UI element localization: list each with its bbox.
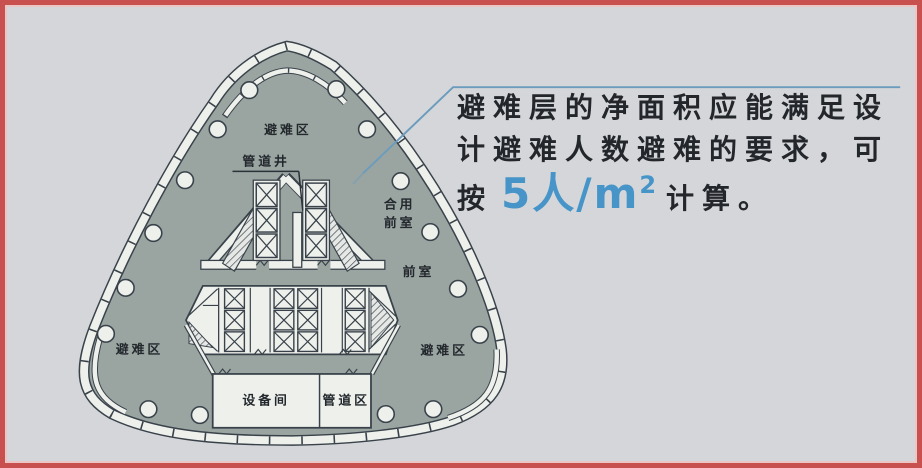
pipe-shaft-bar (293, 212, 302, 267)
label-refuge-right: 避难区 (420, 342, 467, 358)
rate-text: 5人/m (501, 169, 639, 218)
label-pipe-shaft: 管道井 (242, 154, 289, 170)
annotation-text: 避难层的净面积应能满足设 计避难人数避难的要求，可 按 5人/m2 计算。 (457, 87, 919, 220)
page-canvas: 设备间 管道区 避难区 管道井 合用 前室 前室 避难区 避难区 避难层的净面积… (5, 5, 917, 463)
label-shared-lobby-2: 前室 (384, 215, 416, 231)
occupancy-rate-value: 5人/m2 (501, 173, 658, 215)
label-refuge-left: 避难区 (116, 341, 163, 357)
label-lobby: 前室 (403, 264, 435, 280)
annotation-line-3-prefix: 按 (457, 178, 493, 220)
label-pipe-zone: 管道区 (323, 392, 370, 408)
floor-plan-svg: 设备间 管道区 避难区 管道井 合用 前室 前室 避难区 避难区 (5, 5, 917, 463)
label-refuge-top: 避难区 (264, 122, 311, 138)
label-shared-lobby-1: 合用 (383, 197, 416, 213)
annotation-line-1: 避难层的净面积应能满足设 (457, 87, 919, 129)
annotation-line-2: 计避难人数避难的要求，可 (457, 129, 919, 171)
rate-superscript: 2 (639, 171, 658, 199)
label-equipment-room: 设备间 (242, 392, 289, 408)
lower-core (186, 286, 398, 355)
bottom-rooms: 设备间 管道区 (213, 369, 371, 428)
annotation-line-3-suffix: 计算。 (666, 178, 774, 220)
annotation-line-3: 按 5人/m2 计算。 (457, 173, 919, 220)
